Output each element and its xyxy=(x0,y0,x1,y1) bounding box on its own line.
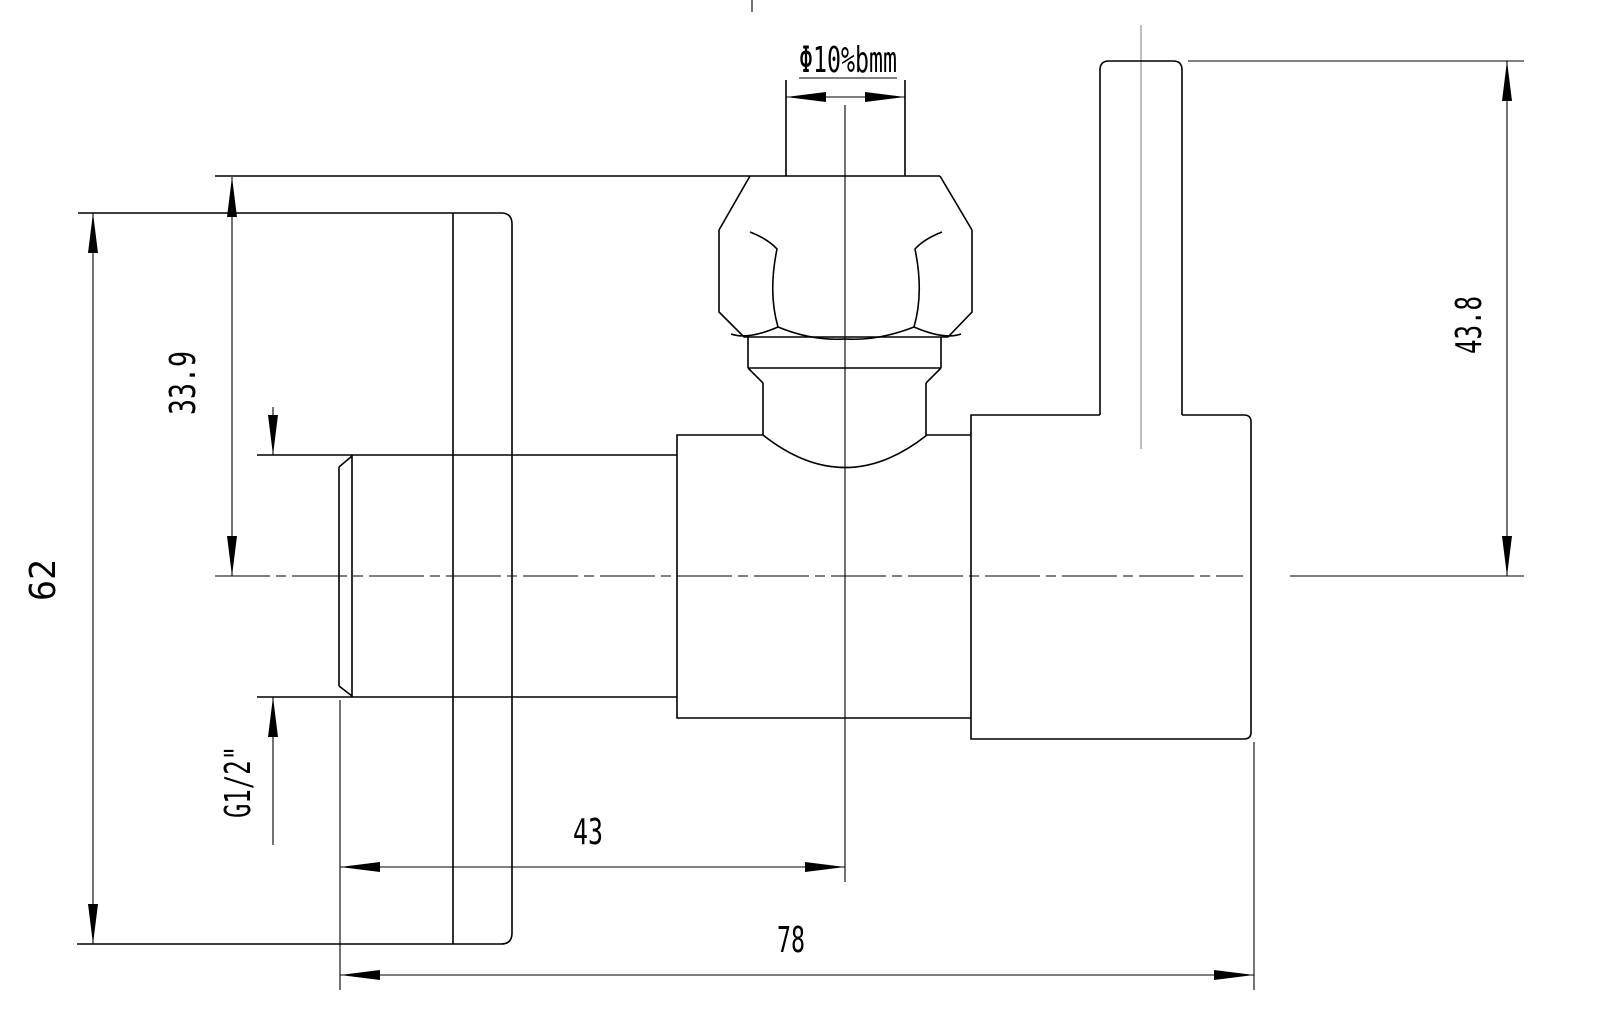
arrow-down xyxy=(1502,536,1512,576)
escutcheon-plate xyxy=(77,213,512,944)
arrow-up xyxy=(227,177,237,217)
dim-label-handle-top-to-center: 43.8 xyxy=(1449,296,1490,354)
arrow-right xyxy=(865,92,905,102)
dim-nut-top-to-center: 33.9 xyxy=(163,177,237,576)
arrow-up xyxy=(268,697,278,737)
dim-center-to-inlet-end: 43 xyxy=(340,700,845,990)
dim-inlet-thread: G1/2" xyxy=(218,407,278,845)
dim-label-nut-top-to-center: 33.9 xyxy=(163,351,204,415)
angle-valve-drawing: Φ10%bmm 33.9 62 G1/2" 43 78 xyxy=(0,0,1611,1035)
dim-label-center-to-inlet-end: 43 xyxy=(573,812,603,853)
dim-overall-height: 62 xyxy=(23,213,98,944)
arrow-up xyxy=(1502,61,1512,101)
arrow-left xyxy=(340,970,380,980)
arrow-down xyxy=(88,904,98,944)
dim-label-overall-height: 62 xyxy=(23,559,64,601)
dim-label-overall-length: 78 xyxy=(777,920,805,961)
dim-label-tube-diameter: Φ10%bmm xyxy=(799,40,897,81)
outlet-block xyxy=(971,415,1251,739)
arrow-up xyxy=(88,213,98,253)
arrow-right xyxy=(1214,970,1254,980)
hex-facet-lines xyxy=(731,232,961,339)
arrow-right xyxy=(805,862,845,872)
arrow-left xyxy=(340,862,380,872)
dim-label-inlet-thread: G1/2" xyxy=(218,746,259,818)
arrow-down xyxy=(227,536,237,576)
arrow-left xyxy=(786,92,826,102)
dim-overall-length: 78 xyxy=(340,742,1254,990)
arrow-down xyxy=(268,415,278,455)
dim-handle-top-to-center: 43.8 xyxy=(1188,61,1524,576)
technical-drawing-page: Φ10%bmm 33.9 62 G1/2" 43 78 xyxy=(0,0,1611,1035)
centerlines xyxy=(215,0,1524,882)
dim-tube-diameter: Φ10%bmm xyxy=(786,40,905,102)
